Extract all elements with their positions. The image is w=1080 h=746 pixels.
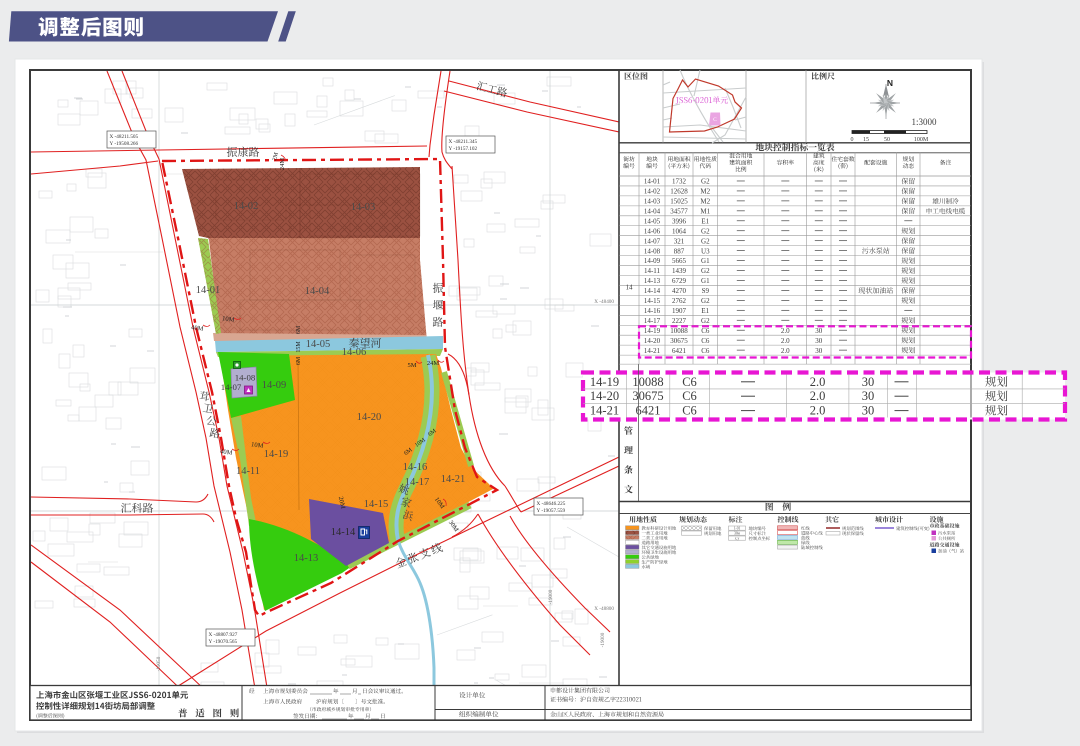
svg-text:C: C [713,117,717,123]
svg-text:30675: 30675 [670,337,688,345]
svg-text:14-03: 14-03 [351,202,376,213]
svg-text:X -48646.225: X -48646.225 [537,501,566,507]
svg-text:14-15: 14-15 [364,499,389,510]
svg-text:X -48807.927: X -48807.927 [209,632,238,638]
svg-text:14-09: 14-09 [262,380,287,391]
svg-text:14-05: 14-05 [644,217,661,225]
svg-text:15M: 15M [296,341,302,353]
svg-text:X -48211.345: X -48211.345 [449,139,478,145]
svg-text:14-21: 14-21 [590,404,619,418]
svg-text:14-07: 14-07 [221,382,242,392]
svg-text:G2: G2 [701,178,710,186]
svg-text:14-14: 14-14 [644,287,661,295]
svg-text:6421: 6421 [672,347,687,355]
svg-text:G2: G2 [701,317,710,325]
svg-text:100M: 100M [914,137,929,143]
svg-text:G2: G2 [701,237,710,245]
svg-text:14-02: 14-02 [234,201,259,212]
svg-text:14-01: 14-01 [644,178,661,186]
svg-text:50: 50 [884,137,890,143]
svg-text:2227: 2227 [672,317,687,325]
svg-text:14-06: 14-06 [342,347,367,358]
svg-text:14-02: 14-02 [644,188,661,196]
svg-text:2.0: 2.0 [781,327,790,335]
svg-text:10088: 10088 [632,375,663,389]
svg-text:14-14: 14-14 [331,527,356,538]
svg-text:4270: 4270 [672,287,687,295]
svg-text:6421: 6421 [636,404,661,418]
svg-text:14-19: 14-19 [644,327,661,335]
svg-text:14-20: 14-20 [590,389,619,403]
svg-text:30: 30 [815,347,823,355]
svg-text:Y -19157.102: Y -19157.102 [449,146,478,152]
svg-text:C6: C6 [701,337,710,345]
svg-text:C6: C6 [701,327,710,335]
svg-text:14-15: 14-15 [644,297,661,305]
svg-text:X -48800: X -48800 [594,606,614,612]
svg-text:14-19: 14-19 [590,375,619,389]
svg-text:30: 30 [862,389,875,403]
svg-text:14-05: 14-05 [306,339,331,350]
svg-text:14-16: 14-16 [403,462,428,473]
svg-text:14-16: 14-16 [644,307,661,315]
svg-text:2.0: 2.0 [810,375,826,389]
svg-text:U3: U3 [701,247,710,255]
svg-text:14-08: 14-08 [644,247,661,255]
svg-text:G1: G1 [701,277,710,285]
svg-text:5M: 5M [407,362,416,369]
svg-text:14-13: 14-13 [294,553,319,564]
svg-text:15: 15 [863,137,869,143]
svg-text:2.0: 2.0 [810,404,826,418]
svg-text:E1: E1 [701,307,709,315]
svg-text:30: 30 [862,404,875,418]
svg-text:14-07: 14-07 [644,237,661,245]
svg-text:C6: C6 [682,389,697,403]
svg-text:1439: 1439 [672,267,687,275]
svg-text:24M: 24M [279,158,286,171]
svg-text:14-06: 14-06 [644,227,661,235]
svg-text:321: 321 [674,237,685,245]
svg-text:10088: 10088 [670,327,688,335]
svg-text:6729: 6729 [672,277,687,285]
svg-text:1907: 1907 [672,307,687,315]
svg-text:34577: 34577 [670,207,688,215]
svg-text:14-11: 14-11 [236,466,260,477]
svg-text:12628: 12628 [670,188,688,196]
svg-text:G2: G2 [701,297,710,305]
svg-text:-19000: -19000 [548,589,554,604]
svg-text:14-20: 14-20 [357,412,382,423]
svg-text:N: N [887,78,893,88]
svg-text:2.0: 2.0 [781,347,790,355]
svg-text:G1: G1 [701,257,710,265]
svg-text:14-17: 14-17 [405,477,430,488]
svg-text:14-03: 14-03 [644,198,661,206]
svg-text:6M: 6M [296,325,302,334]
svg-text:3996: 3996 [672,217,687,225]
svg-text:1732: 1732 [672,178,687,186]
svg-text:14-11: 14-11 [644,267,661,275]
svg-text:30м: 30м [734,532,741,536]
svg-text:-19050: -19050 [156,656,162,671]
svg-text:14-09: 14-09 [644,257,661,265]
svg-text:X -48211.505: X -48211.505 [110,134,139,140]
svg-text:E1: E1 [701,217,709,225]
svg-text:C6: C6 [701,347,710,355]
svg-text:14-17: 14-17 [644,317,661,325]
svg-text:X -48400: X -48400 [594,299,614,305]
svg-text:M1: M1 [700,207,710,215]
svg-text:S9: S9 [702,287,710,295]
svg-text:14-21: 14-21 [441,474,466,485]
svg-text:887: 887 [674,247,685,255]
svg-text:30: 30 [815,327,823,335]
svg-text:0: 0 [851,137,854,143]
svg-text:Y -19070.565: Y -19070.565 [209,639,238,645]
svg-text:14-01: 14-01 [196,285,221,296]
svg-text:1:3000: 1:3000 [911,117,937,127]
svg-text:6M: 6M [296,356,302,365]
svg-text:14-20: 14-20 [644,337,661,345]
svg-text:M2: M2 [700,188,710,196]
svg-text:C6: C6 [682,404,697,418]
svg-text:15025: 15025 [670,198,688,206]
svg-text:14: 14 [626,284,634,292]
svg-text:24M: 24M [427,360,440,367]
svg-text:2762: 2762 [672,297,687,305]
svg-text:1-01: 1-01 [734,527,741,531]
svg-text:-19000: -19000 [600,632,606,647]
svg-text:2.0: 2.0 [810,389,826,403]
svg-text:14-21: 14-21 [644,347,661,355]
svg-text:G2: G2 [701,267,710,275]
svg-text:M2: M2 [700,198,710,206]
svg-text:30: 30 [815,337,823,345]
svg-text:14-19: 14-19 [264,449,289,460]
svg-text:30: 30 [862,375,875,389]
svg-text:1064: 1064 [672,227,687,235]
svg-text:14-13: 14-13 [644,277,661,285]
svg-text:14-04: 14-04 [305,286,330,297]
svg-text:14-08: 14-08 [235,373,256,383]
svg-text:14-04: 14-04 [644,207,661,215]
svg-text:Y -19508.266: Y -19508.266 [110,141,139,147]
svg-text:30675: 30675 [632,389,663,403]
svg-text:2.0: 2.0 [781,337,790,345]
svg-text:5665: 5665 [672,257,687,265]
svg-text:Y -19057.559: Y -19057.559 [537,508,566,514]
svg-text:G2: G2 [701,227,710,235]
svg-text:C6: C6 [682,375,697,389]
